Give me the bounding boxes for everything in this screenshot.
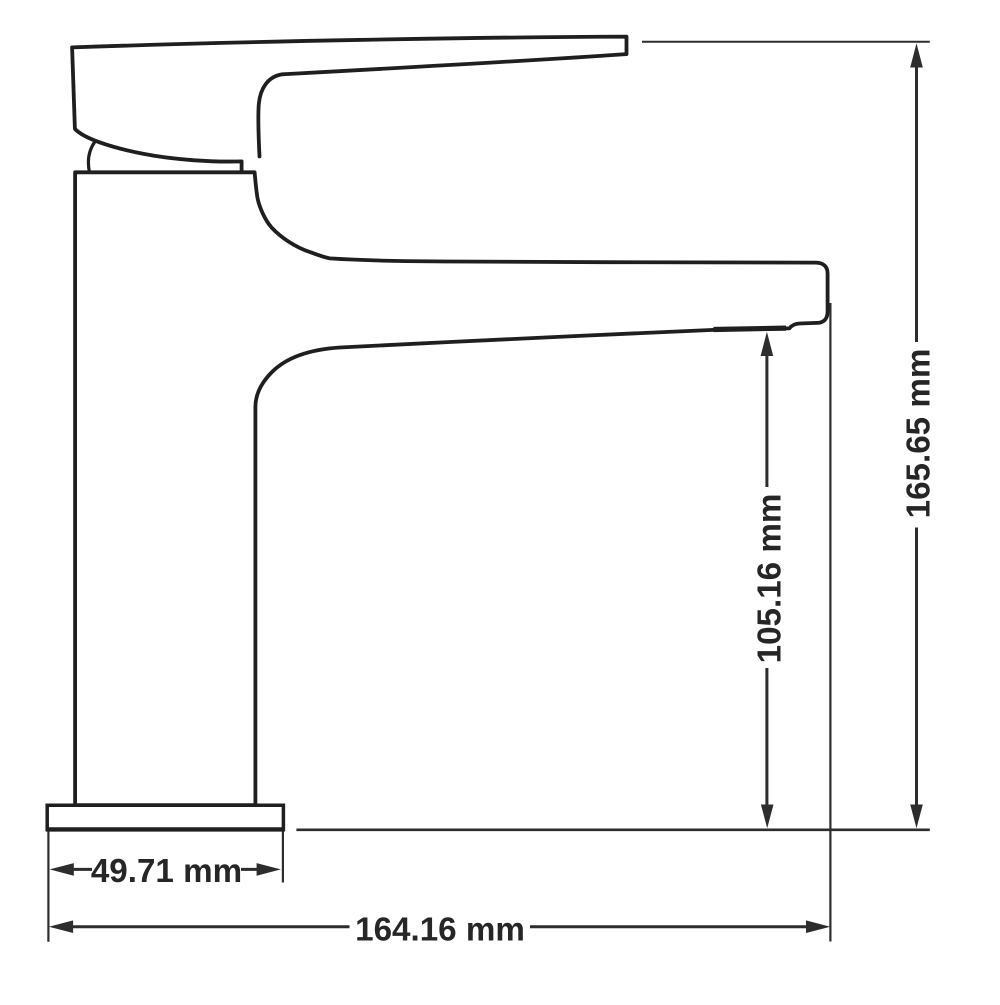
svg-text:165.65 mm: 165.65 mm: [901, 349, 938, 519]
svg-text:164.16 mm: 164.16 mm: [355, 911, 525, 948]
svg-text:49.71 mm: 49.71 mm: [91, 853, 242, 890]
svg-text:105.16 mm: 105.16 mm: [751, 494, 788, 664]
